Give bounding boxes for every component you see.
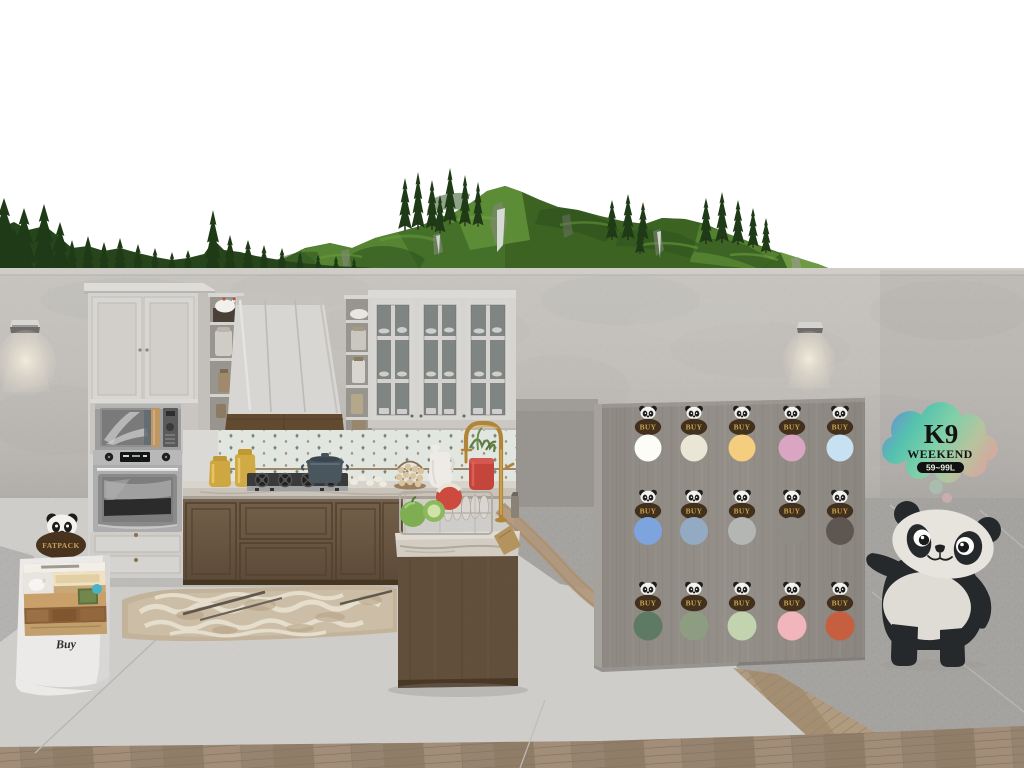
svg-text:WEEKEND: WEEKEND	[907, 447, 972, 461]
svg-text:Buy: Buy	[55, 637, 77, 652]
svg-text:59~99L: 59~99L	[926, 463, 955, 473]
svg-text:K9: K9	[924, 419, 959, 449]
svg-text:FATPACK: FATPACK	[42, 541, 79, 550]
